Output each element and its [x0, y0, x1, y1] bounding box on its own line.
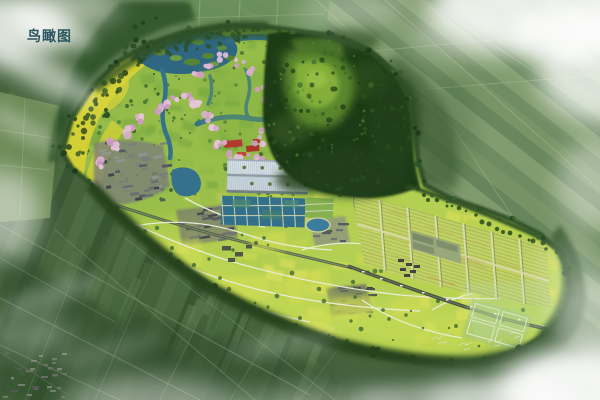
svg-text:鸟瞰图: 鸟瞰图 [27, 28, 72, 44]
